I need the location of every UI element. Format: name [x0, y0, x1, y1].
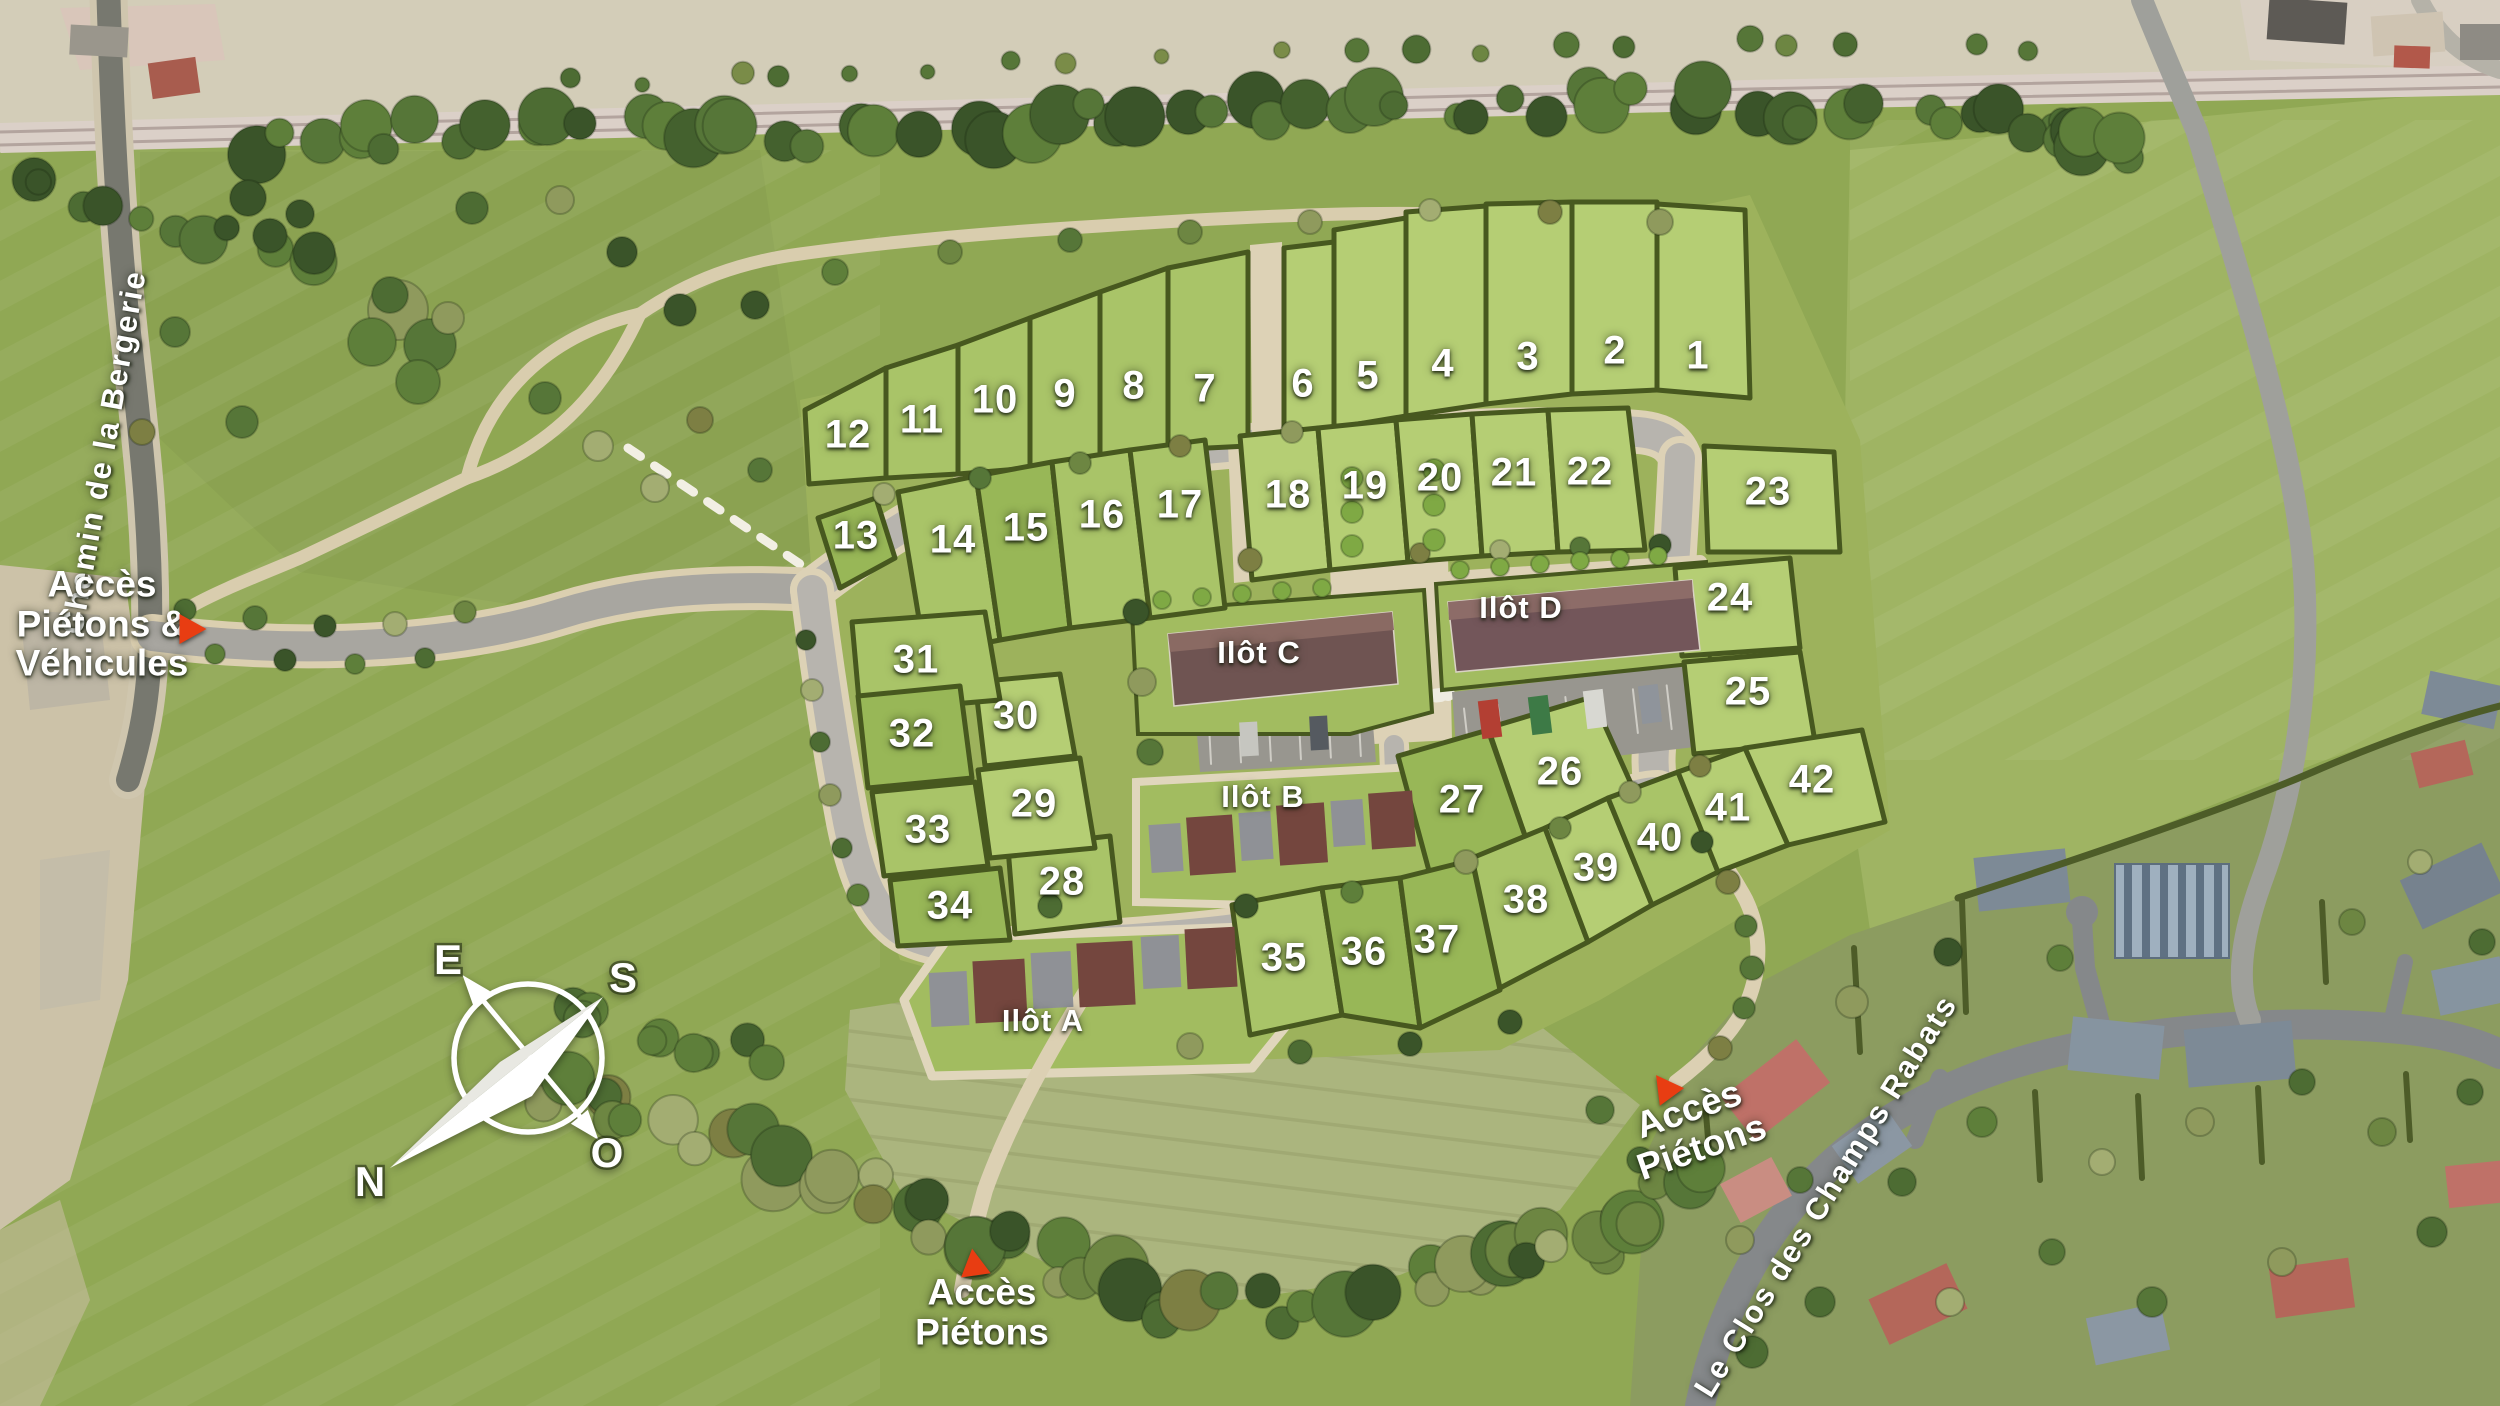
plot-number-28: 28 — [1039, 860, 1086, 905]
plot-number-5: 5 — [1356, 354, 1379, 399]
ilot-label-c: Ilôt C — [1217, 635, 1301, 671]
street-label-le-clos-des-champs-rabats: Le Clos des Champs Rabats — [1687, 988, 1965, 1403]
access-arrow-south-icon — [959, 1249, 989, 1276]
plot-number-14: 14 — [930, 518, 977, 563]
plot-number-23: 23 — [1745, 470, 1792, 515]
plot-number-22: 22 — [1567, 450, 1614, 495]
site-plan-screenshot: E S O N 12345678910111213141516171819202… — [0, 0, 2500, 1406]
ilot-label-a: Ilôt A — [1002, 1003, 1084, 1039]
plot-number-21: 21 — [1491, 451, 1538, 496]
ilot-label-d: Ilôt D — [1479, 590, 1563, 626]
ilot-label-b: Ilôt B — [1221, 779, 1305, 815]
access-label-line: Piétons & — [16, 604, 189, 644]
plot-number-41: 41 — [1705, 786, 1752, 831]
access-label-line: Véhicules — [16, 644, 189, 684]
plot-number-13: 13 — [833, 514, 880, 559]
plot-number-39: 39 — [1573, 846, 1620, 891]
plot-number-30: 30 — [993, 694, 1040, 739]
plot-number-33: 33 — [905, 808, 952, 853]
access-arrow-west-icon — [178, 616, 208, 643]
access-label-west: AccèsPiétons &Véhicules — [16, 565, 189, 684]
plot-number-27: 27 — [1439, 778, 1486, 823]
plot-number-6: 6 — [1291, 362, 1314, 407]
access-label-south: AccèsPiétons — [915, 1272, 1049, 1351]
plot-number-29: 29 — [1011, 782, 1058, 827]
plot-number-15: 15 — [1003, 506, 1050, 551]
plot-number-38: 38 — [1503, 878, 1550, 923]
plot-number-25: 25 — [1725, 670, 1772, 715]
plot-number-37: 37 — [1414, 918, 1461, 963]
plot-number-40: 40 — [1637, 816, 1684, 861]
plot-number-20: 20 — [1417, 456, 1464, 501]
plot-number-7: 7 — [1193, 367, 1216, 412]
access-label-line: Piétons — [915, 1312, 1049, 1352]
map-labels-overlay: 1234567891011121314151617181920212223242… — [0, 0, 2500, 1406]
plot-number-18: 18 — [1265, 473, 1312, 518]
access-label-east: AccèsPiétons — [1619, 1069, 1771, 1187]
plot-number-2: 2 — [1603, 329, 1626, 374]
plot-number-34: 34 — [927, 884, 974, 929]
plot-number-19: 19 — [1342, 464, 1389, 509]
plot-number-9: 9 — [1053, 372, 1076, 417]
access-label-line: Accès — [915, 1272, 1049, 1312]
plot-number-1: 1 — [1686, 334, 1709, 379]
plot-number-42: 42 — [1789, 758, 1836, 803]
plot-number-31: 31 — [893, 638, 940, 683]
plot-number-32: 32 — [889, 712, 936, 757]
access-label-line: Accès — [16, 565, 189, 605]
plot-number-11: 11 — [900, 398, 944, 443]
plot-number-8: 8 — [1122, 364, 1145, 409]
plot-number-26: 26 — [1537, 750, 1584, 795]
plot-number-12: 12 — [825, 413, 872, 458]
plot-number-17: 17 — [1157, 483, 1204, 528]
plot-number-35: 35 — [1261, 936, 1308, 981]
plot-number-36: 36 — [1341, 930, 1388, 975]
plot-number-4: 4 — [1431, 342, 1454, 387]
plot-number-10: 10 — [972, 378, 1019, 423]
plot-number-3: 3 — [1516, 335, 1539, 380]
access-arrow-east-icon — [1649, 1073, 1679, 1100]
plot-number-16: 16 — [1079, 493, 1126, 538]
plot-number-24: 24 — [1707, 576, 1754, 621]
